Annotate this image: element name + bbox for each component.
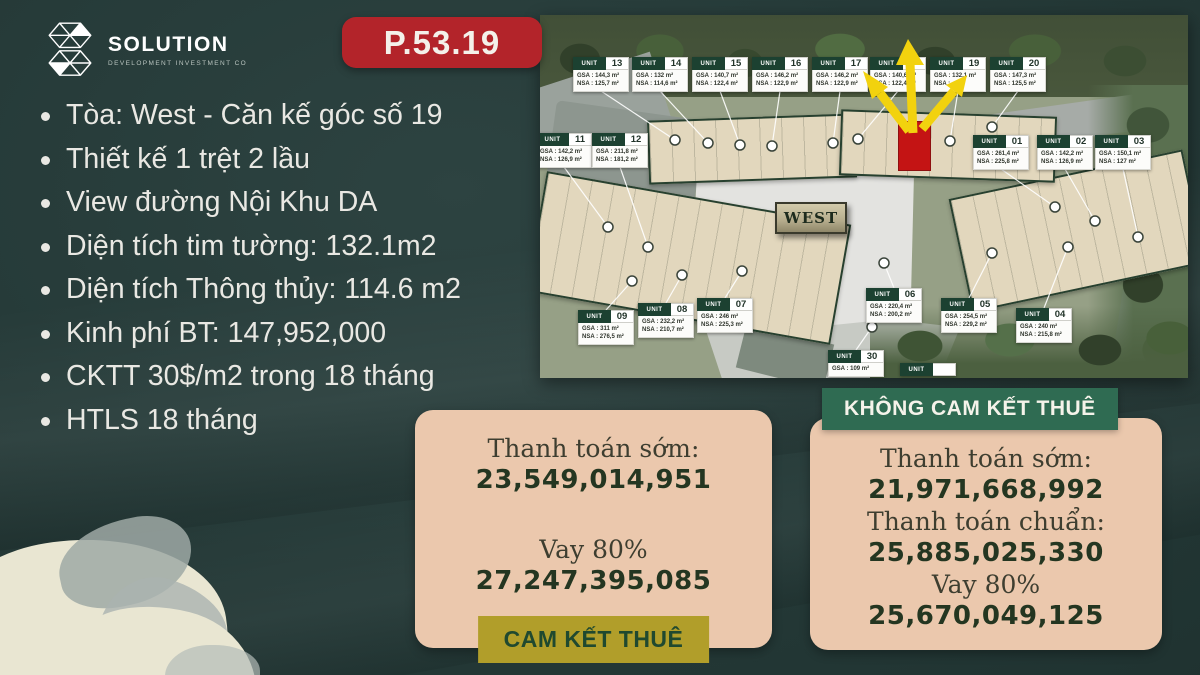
spacer	[415, 497, 772, 535]
price-box-committed: Thanh toán sớm: 23,549,014,951 Vay 80% 2…	[415, 410, 772, 648]
company-name: SOLUTION	[108, 33, 247, 57]
unit-code-badge: P.53.19	[342, 17, 542, 68]
presentation-slide: SOLUTION DEVELOPMENT INVESTMENT CO P.53.…	[0, 0, 1200, 675]
price-value: 27,247,395,085	[415, 565, 772, 598]
price-label: Thanh toán sớm:	[810, 444, 1162, 474]
non-committed-rental-badge: KHÔNG CAM KẾT THUÊ	[822, 388, 1118, 430]
list-item: Tòa: West - Căn kế góc số 19	[36, 94, 536, 138]
price-label: Thanh toán sớm:	[415, 434, 772, 464]
price-value: 25,885,025,330	[810, 537, 1162, 570]
company-logo: SOLUTION DEVELOPMENT INVESTMENT CO	[44, 20, 247, 80]
unit-details-list: Tòa: West - Căn kế góc số 19 Thiết kế 1 …	[36, 94, 536, 442]
site-plan-image: WEST	[540, 15, 1188, 378]
direction-arrows	[540, 15, 1188, 378]
price-label: Vay 80%	[810, 570, 1162, 600]
price-label: Vay 80%	[415, 535, 772, 565]
solution-hexagon-logo-icon	[44, 20, 96, 80]
list-item: CKTT 30$/m2 trong 18 tháng	[36, 355, 536, 399]
price-label: Thanh toán chuẩn:	[810, 507, 1162, 537]
price-value: 23,549,014,951	[415, 464, 772, 497]
logo-text: SOLUTION DEVELOPMENT INVESTMENT CO	[108, 33, 247, 67]
list-item: Thiết kế 1 trệt 2 lầu	[36, 138, 536, 182]
price-value: 25,670,049,125	[810, 600, 1162, 633]
price-value: 21,971,668,992	[810, 474, 1162, 507]
price-box-non-committed: KHÔNG CAM KẾT THUÊ Thanh toán sớm: 21,97…	[810, 418, 1162, 650]
company-tagline: DEVELOPMENT INVESTMENT CO	[108, 60, 247, 67]
list-item: Kinh phí BT: 147,952,000	[36, 312, 536, 356]
committed-rental-badge: CAM KẾT THUÊ	[478, 616, 710, 663]
list-item: View đường Nội Khu DA	[36, 181, 536, 225]
list-item: Diện tích Thông thủy: 114.6 m2	[36, 268, 536, 312]
list-item: Diện tích tim tường: 132.1m2	[36, 225, 536, 269]
